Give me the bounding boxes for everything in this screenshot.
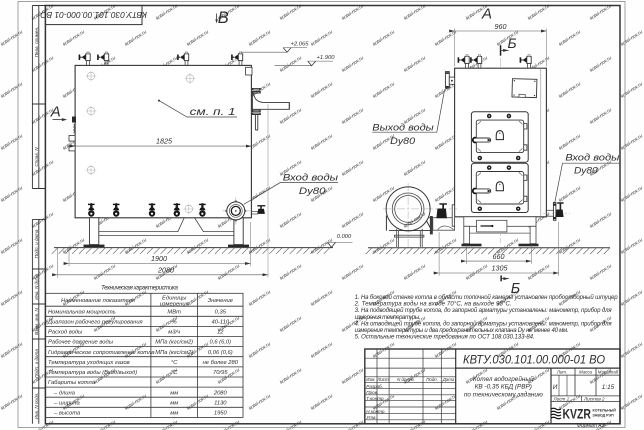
svg-text:Значение: Значение bbox=[208, 298, 234, 304]
svg-text:КВТУ.030.101.00.000-01 ВО: КВТУ.030.101.00.000-01 ВО bbox=[463, 353, 605, 367]
svg-text:°С: °С bbox=[171, 360, 178, 366]
svg-text:°С: °С bbox=[171, 370, 178, 376]
svg-text:Лист 1: Лист 1 bbox=[553, 396, 570, 401]
svg-text:Подп.: Подп. bbox=[426, 377, 438, 382]
svg-text:1825: 1825 bbox=[156, 137, 173, 146]
svg-text:Диапазон рабочего регулировани: Диапазон рабочего регулирования bbox=[47, 320, 143, 326]
svg-text:0.000: 0.000 bbox=[337, 234, 352, 240]
svg-text:– высота: – высота bbox=[53, 411, 81, 417]
svg-text:1305: 1305 bbox=[492, 264, 509, 273]
svg-text:Н.контр.: Н.контр. bbox=[366, 409, 385, 414]
svg-text:измерения температуры и два пр: измерения температуры и два предохраните… bbox=[355, 328, 569, 334]
svg-text:KVZR: KVZR bbox=[563, 406, 592, 421]
svg-text:Лит.: Лит. bbox=[556, 369, 567, 374]
svg-text:Разраб.: Разраб. bbox=[366, 384, 383, 389]
svg-text:Габариты котла: Габариты котла bbox=[48, 380, 96, 386]
svg-text:мм: мм bbox=[170, 390, 178, 396]
svg-text:Температура уходящих газов: Температура уходящих газов bbox=[48, 360, 130, 366]
svg-text:Масса: Масса bbox=[579, 369, 593, 374]
svg-text:Подп. и дата: Подп. и дата bbox=[34, 229, 39, 258]
svg-text:Инв. N подл.: Инв. N подл. bbox=[34, 392, 39, 419]
svg-text:2. Температура воды на входе 7: 2. Температура воды на входе 70°С, на вы… bbox=[354, 302, 512, 308]
svg-text:N докум.: N докум. bbox=[397, 377, 415, 382]
svg-text:мм: мм bbox=[170, 400, 178, 406]
svg-text:МПа (кгс/см2): МПа (кгс/см2) bbox=[155, 340, 193, 346]
svg-text:660: 660 bbox=[493, 252, 505, 261]
svg-text:Гидравлическое сопротивление к: Гидравлическое сопротивление котла bbox=[48, 350, 155, 356]
svg-text:Утв.: Утв. bbox=[366, 415, 376, 420]
svg-text:Наименование показателя: Наименование показателя bbox=[61, 298, 135, 304]
svg-text:измерения: измерения bbox=[160, 301, 189, 307]
svg-text:МПа (кгс/см2): МПа (кгс/см2) bbox=[155, 350, 193, 356]
svg-text:1950: 1950 bbox=[214, 411, 228, 417]
svg-text:+1.900: +1.900 bbox=[317, 55, 336, 61]
svg-text:1130: 1130 bbox=[214, 400, 227, 406]
svg-text:ЗАВОД РЭП: ЗАВОД РЭП bbox=[593, 414, 615, 418]
svg-text:Пров.: Пров. bbox=[366, 390, 378, 395]
svg-text:см. п. 1: см. п. 1 bbox=[190, 106, 236, 118]
svg-text:Взам. инв. N: Взам. инв. N bbox=[34, 307, 39, 334]
svg-text:В: В bbox=[218, 9, 229, 27]
svg-text:Подп. и дата: Подп. и дата bbox=[34, 349, 39, 378]
svg-text:Температура воды (Вход/выход): Температура воды (Вход/выход) bbox=[48, 370, 137, 376]
svg-text:3. На подводящей трубе котла,: 3. На подводящей трубе котла, до запорно… bbox=[355, 307, 613, 314]
svg-text:960: 960 bbox=[495, 22, 507, 31]
svg-text:+2.065: +2.065 bbox=[291, 42, 310, 48]
svg-text:мм: мм bbox=[170, 411, 178, 417]
svg-text:Т.контр.: Т.контр. bbox=[366, 396, 385, 401]
svg-text:Вход воды: Вход воды bbox=[283, 171, 338, 182]
svg-text:2080: 2080 bbox=[213, 390, 228, 396]
svg-text:Лист: Лист bbox=[376, 377, 389, 382]
svg-text:– ширина: – ширина bbox=[53, 400, 81, 406]
svg-text:Изм.: Изм. bbox=[366, 377, 375, 382]
svg-text:Справ. N: Справ. N bbox=[34, 147, 39, 167]
svg-text:по техническому заданию: по техническому заданию bbox=[464, 390, 543, 398]
svg-text:Масштаб: Масштаб bbox=[598, 369, 619, 374]
svg-text:%: % bbox=[172, 320, 177, 326]
svg-text:Номинальная мощность: Номинальная мощность bbox=[48, 309, 116, 315]
svg-text:1. На боковой стенке котла в о: 1. На боковой стенке котла в области топ… bbox=[355, 294, 619, 301]
svg-text:Рабочее давление воды: Рабочее давление воды bbox=[48, 340, 114, 346]
svg-text:Вход воды: Вход воды bbox=[565, 151, 619, 162]
svg-text:Техническая характеристика: Техническая характеристика bbox=[101, 284, 179, 291]
svg-text:40-110: 40-110 bbox=[211, 320, 229, 326]
svg-text:Б: Б bbox=[508, 35, 517, 51]
svg-text:5. Остальные технические требо: 5. Остальные технические требования по О… bbox=[355, 335, 535, 341]
svg-text:И: И bbox=[553, 384, 558, 391]
svg-text:2080: 2080 bbox=[157, 265, 174, 274]
svg-text:КОТЕЛЬНЫЙ: КОТЕЛЬНЫЙ bbox=[593, 409, 617, 413]
svg-text:А: А bbox=[50, 104, 61, 121]
svg-text:Dy80: Dy80 bbox=[574, 165, 598, 176]
svg-text:Листов 2: Листов 2 bbox=[583, 396, 605, 401]
svg-text:0,06 (0,6): 0,06 (0,6) bbox=[208, 350, 233, 356]
svg-text:4. На отводящей трубе котла, д: 4. На отводящей трубе котла, до запорной… bbox=[355, 320, 613, 327]
svg-text:МВт: МВт bbox=[167, 309, 181, 315]
svg-text:Дата: Дата bbox=[442, 377, 455, 382]
svg-text:Dy80: Dy80 bbox=[299, 185, 327, 196]
svg-text:Инв. N дубл.: Инв. N дубл. bbox=[34, 273, 39, 300]
svg-text:Котел водогрейный: Котел водогрейный bbox=[473, 375, 534, 383]
svg-text:Dy80: Dy80 bbox=[390, 135, 416, 146]
svg-text:А: А bbox=[481, 6, 492, 23]
svg-text:0,35: 0,35 bbox=[215, 309, 227, 315]
svg-text:– длина: – длина bbox=[53, 390, 76, 396]
svg-text:70/95: 70/95 bbox=[213, 370, 228, 376]
svg-text:Формат А3: Формат А3 bbox=[577, 423, 605, 429]
svg-text:Расход воды: Расход воды bbox=[48, 330, 83, 336]
svg-text:м3/ч: м3/ч bbox=[168, 330, 180, 336]
svg-text:КВТУ.030.101.00.000-01 ВО: КВТУ.030.101.00.000-01 ВО bbox=[40, 10, 147, 20]
svg-text:Перв. примен.: Перв. примен. bbox=[34, 27, 39, 58]
svg-text:измерения температуры.: измерения температуры. bbox=[355, 315, 421, 321]
svg-text:0,6 (6,0): 0,6 (6,0) bbox=[210, 340, 232, 346]
svg-text:12: 12 bbox=[217, 330, 224, 336]
svg-text:1900: 1900 bbox=[151, 254, 167, 263]
svg-text:Выход воды: Выход воды bbox=[372, 121, 434, 132]
svg-text:не более 280: не более 280 bbox=[203, 360, 239, 366]
svg-text:1:15: 1:15 bbox=[602, 384, 615, 391]
svg-text:КВ -0,35 КБД (РВР): КВ -0,35 КБД (РВР) bbox=[475, 384, 532, 391]
